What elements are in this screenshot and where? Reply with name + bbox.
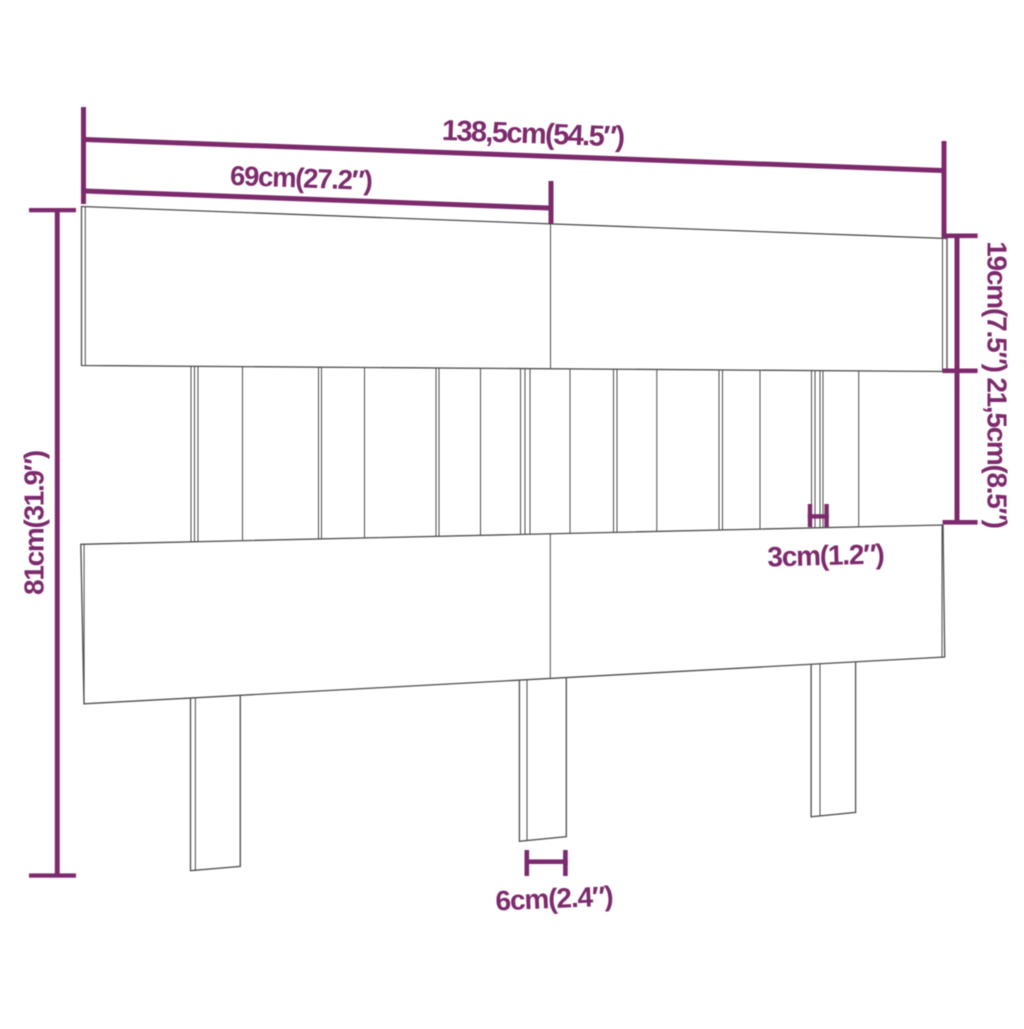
svg-text:21,5cm(8.5″): 21,5cm(8.5″) (982, 377, 1013, 527)
svg-text:19cm(7.5″): 19cm(7.5″) (982, 241, 1013, 372)
svg-text:3cm(1.2″): 3cm(1.2″) (767, 538, 884, 572)
svg-text:138,5cm(54.5″): 138,5cm(54.5″) (441, 115, 625, 154)
svg-text:69cm(27.2″): 69cm(27.2″) (230, 160, 373, 196)
svg-text:6cm(2.4″): 6cm(2.4″) (495, 880, 613, 916)
svg-text:81cm(31.9″): 81cm(31.9″) (19, 451, 50, 595)
